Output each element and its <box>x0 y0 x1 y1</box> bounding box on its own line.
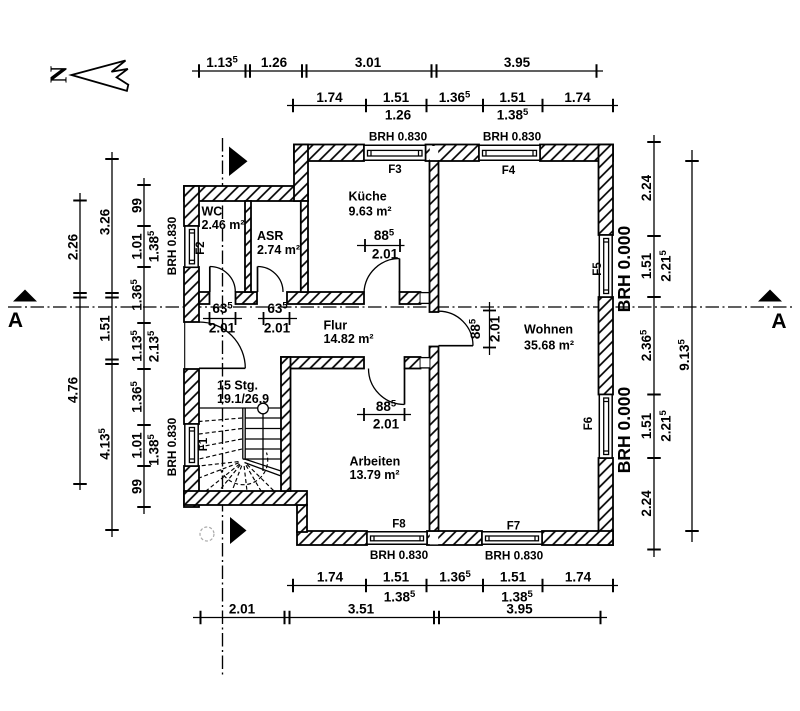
svg-text:2.26: 2.26 <box>66 233 81 260</box>
svg-text:BRH 0.830: BRH 0.830 <box>165 216 179 275</box>
svg-text:15 Stg.: 15 Stg. <box>217 379 258 393</box>
svg-text:Arbeiten: Arbeiten <box>350 455 401 469</box>
svg-text:1.74: 1.74 <box>316 90 343 105</box>
svg-text:1.26: 1.26 <box>261 55 288 70</box>
svg-text:1.01: 1.01 <box>130 233 145 260</box>
svg-text:3.95: 3.95 <box>506 602 533 617</box>
svg-text:1.51: 1.51 <box>639 252 654 279</box>
svg-text:3.95: 3.95 <box>504 55 531 70</box>
svg-text:2.01: 2.01 <box>229 602 256 617</box>
svg-text:BRH 0.000: BRH 0.000 <box>614 225 634 312</box>
svg-text:N: N <box>47 65 73 83</box>
svg-text:F3: F3 <box>388 164 401 176</box>
svg-text:2.01: 2.01 <box>264 321 291 336</box>
svg-text:2.01: 2.01 <box>373 417 400 432</box>
svg-text:2.74 m²: 2.74 m² <box>257 243 300 257</box>
svg-text:Flur: Flur <box>324 319 348 333</box>
svg-text:BRH 0.000: BRH 0.000 <box>614 386 634 473</box>
svg-text:9.63 m²: 9.63 m² <box>349 205 392 219</box>
svg-text:3.51: 3.51 <box>348 602 375 617</box>
svg-text:1.51: 1.51 <box>639 412 654 439</box>
svg-text:F1: F1 <box>198 437 210 451</box>
svg-text:1.51: 1.51 <box>500 570 527 585</box>
svg-text:14.82 m²: 14.82 m² <box>324 332 374 346</box>
svg-text:BRH 0.830: BRH 0.830 <box>165 417 179 476</box>
svg-text:F7: F7 <box>507 521 520 533</box>
svg-text:1.51: 1.51 <box>383 90 410 105</box>
svg-text:ASR: ASR <box>257 229 283 243</box>
svg-text:F5: F5 <box>592 262 604 276</box>
svg-text:19.1/26.9: 19.1/26.9 <box>217 392 269 406</box>
svg-text:1.26: 1.26 <box>385 108 412 123</box>
svg-text:99: 99 <box>130 198 145 213</box>
svg-text:F8: F8 <box>392 519 406 531</box>
svg-text:A: A <box>771 310 786 333</box>
svg-text:1.51: 1.51 <box>499 90 526 105</box>
svg-text:Wohnen: Wohnen <box>524 323 573 337</box>
svg-text:BRH 0.830: BRH 0.830 <box>370 548 429 562</box>
svg-text:2.46 m²: 2.46 m² <box>202 218 245 232</box>
svg-text:2.01: 2.01 <box>488 315 503 342</box>
svg-text:WC: WC <box>202 205 223 219</box>
svg-text:F6: F6 <box>583 417 595 430</box>
svg-text:1.74: 1.74 <box>565 570 592 585</box>
svg-text:2.24: 2.24 <box>639 490 654 517</box>
svg-text:1.74: 1.74 <box>317 570 344 585</box>
svg-text:35.68 m²: 35.68 m² <box>524 339 574 353</box>
svg-text:3.01: 3.01 <box>355 55 382 70</box>
svg-text:99: 99 <box>130 479 145 494</box>
svg-text:A: A <box>8 309 23 332</box>
svg-text:1.74: 1.74 <box>564 90 591 105</box>
svg-text:13.79 m²: 13.79 m² <box>350 468 400 482</box>
svg-text:1.51: 1.51 <box>98 315 113 342</box>
svg-text:F4: F4 <box>502 165 516 177</box>
svg-text:1.51: 1.51 <box>383 570 410 585</box>
svg-text:2.01: 2.01 <box>209 321 236 336</box>
svg-text:4.76: 4.76 <box>66 376 81 403</box>
svg-text:2.01: 2.01 <box>372 247 399 262</box>
svg-text:Küche: Küche <box>349 190 387 204</box>
svg-text:2.24: 2.24 <box>639 174 654 201</box>
svg-text:BRH 0.830: BRH 0.830 <box>485 549 544 563</box>
svg-text:BRH 0.830: BRH 0.830 <box>483 130 542 144</box>
svg-text:3.26: 3.26 <box>98 208 113 235</box>
svg-text:BRH 0.830: BRH 0.830 <box>369 130 428 144</box>
svg-text:F2: F2 <box>195 241 207 254</box>
svg-text:1.01: 1.01 <box>130 432 145 459</box>
